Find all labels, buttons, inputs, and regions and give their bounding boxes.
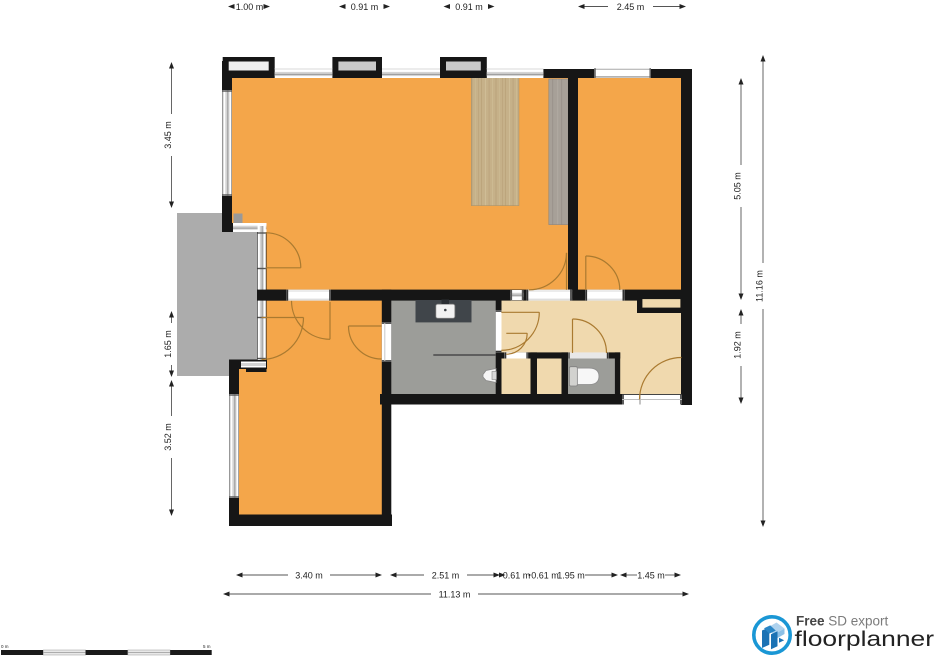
svg-text:0.91 m: 0.91 m — [455, 2, 483, 12]
svg-text:2.45 m: 2.45 m — [617, 2, 645, 12]
svg-text:1.65 m: 1.65 m — [163, 330, 173, 358]
svg-text:0.61 m: 0.61 m — [531, 570, 559, 580]
svg-text:3.40 m: 3.40 m — [295, 570, 323, 580]
svg-text:0.61 m: 0.61 m — [503, 570, 531, 580]
svg-text:1.95 m: 1.95 m — [557, 570, 585, 580]
svg-text:1.92 m: 1.92 m — [733, 331, 743, 359]
svg-text:floorplanner: floorplanner — [795, 627, 935, 651]
svg-text:5.05 m: 5.05 m — [733, 172, 743, 200]
svg-text:0 m: 0 m — [1, 644, 9, 649]
svg-text:0.91 m: 0.91 m — [351, 2, 379, 12]
svg-text:3.45 m: 3.45 m — [163, 121, 173, 149]
svg-text:1.45 m: 1.45 m — [637, 570, 665, 580]
svg-text:11.16 m: 11.16 m — [755, 270, 765, 302]
svg-text:3.52 m: 3.52 m — [163, 423, 173, 451]
svg-text:2.51 m: 2.51 m — [432, 570, 460, 580]
svg-text:1.00 m: 1.00 m — [236, 2, 264, 12]
svg-text:11.13 m: 11.13 m — [439, 589, 471, 599]
svg-text:5 m: 5 m — [203, 644, 211, 649]
